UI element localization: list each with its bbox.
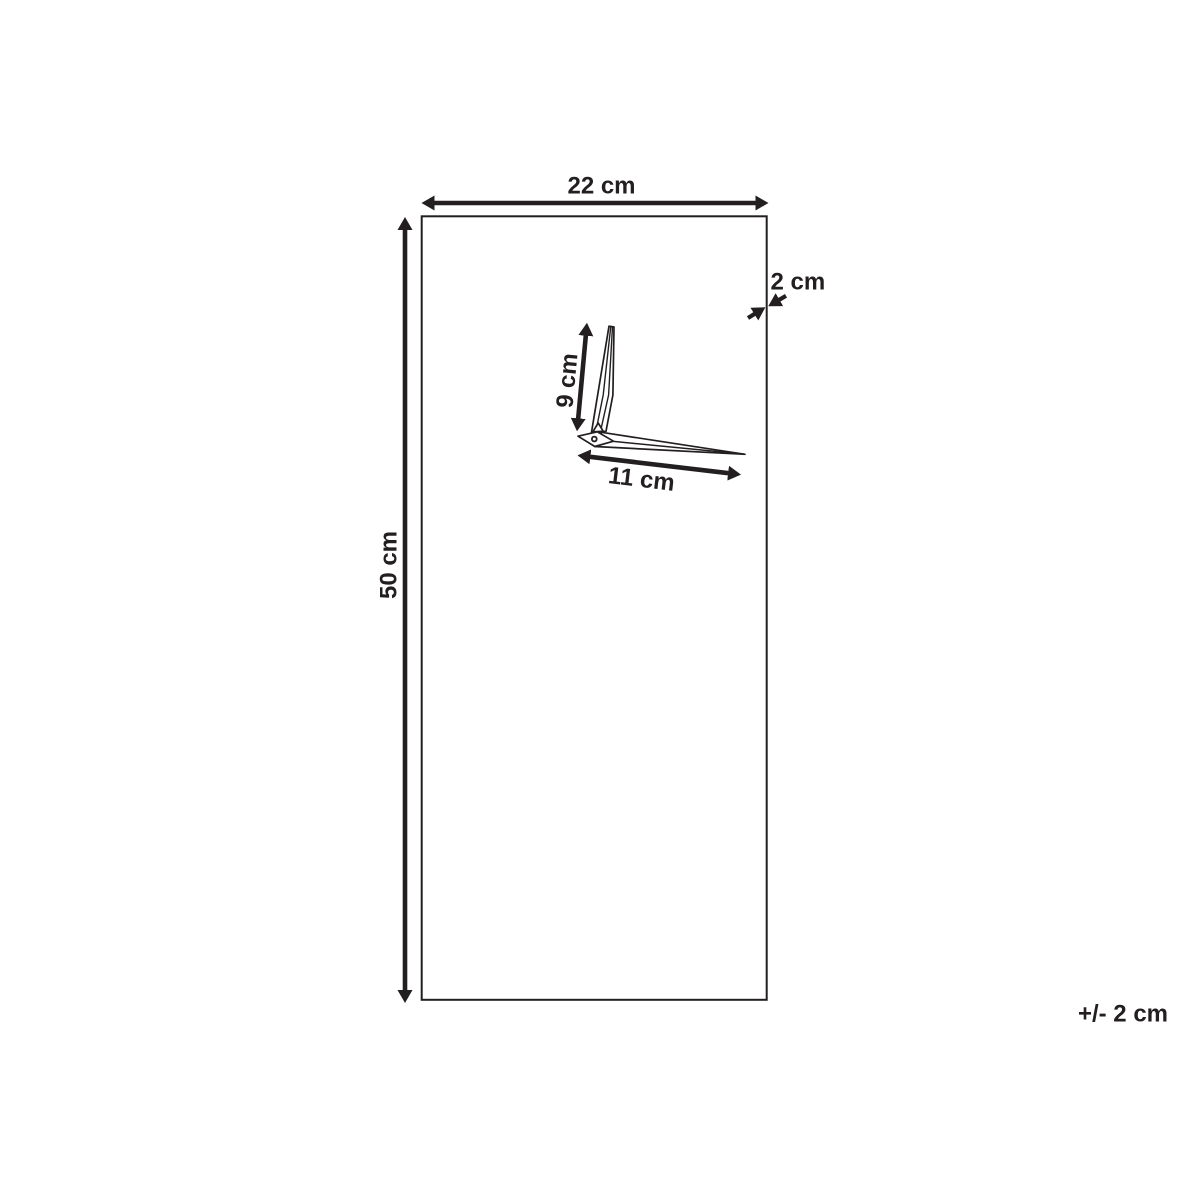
- svg-text:22 cm: 22 cm: [567, 173, 635, 200]
- svg-text:+/- 2 cm: +/- 2 cm: [1078, 1001, 1168, 1028]
- svg-text:50 cm: 50 cm: [376, 531, 403, 599]
- svg-text:9 cm: 9 cm: [551, 352, 583, 409]
- svg-text:2 cm: 2 cm: [771, 269, 826, 296]
